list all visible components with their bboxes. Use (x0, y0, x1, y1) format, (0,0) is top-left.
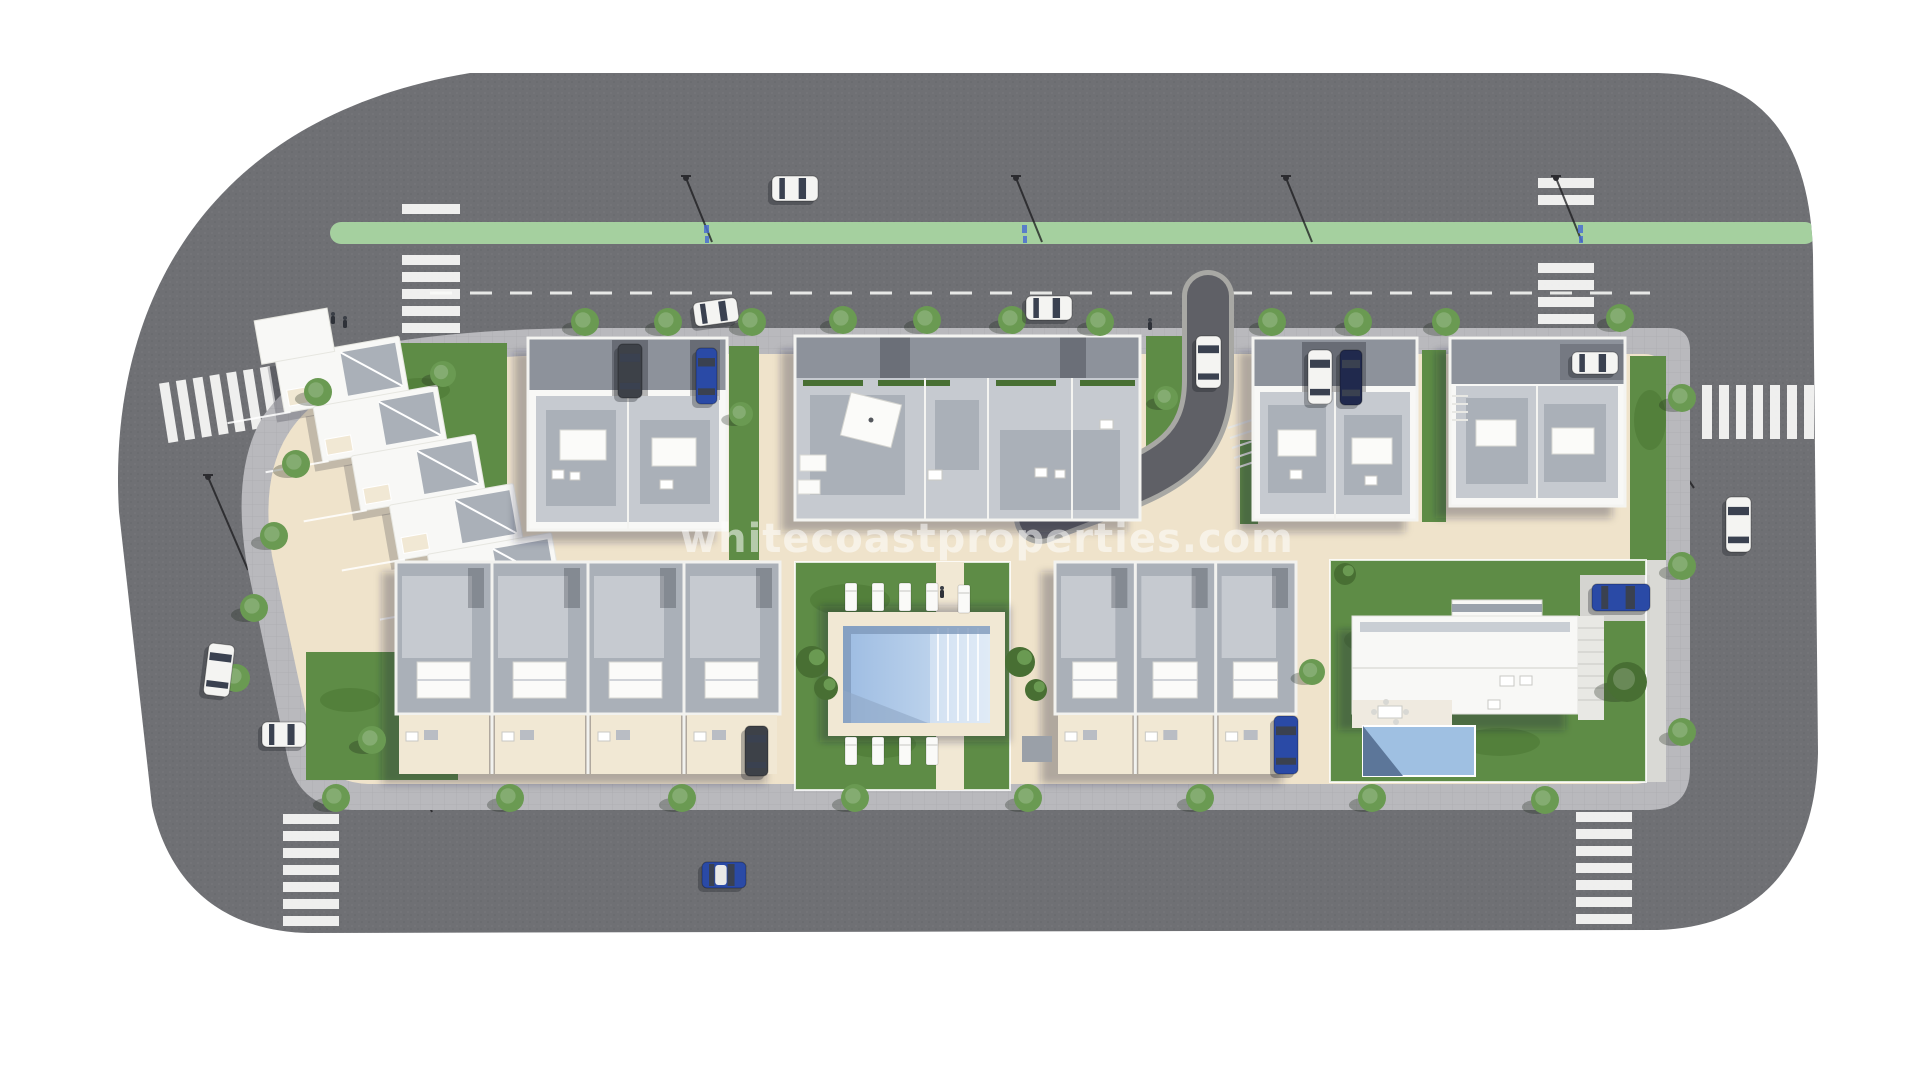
pedestrian-icon (1148, 318, 1152, 330)
lawn-patch (1634, 390, 1666, 450)
car-white-on-driveway (1192, 336, 1221, 392)
pedestrian-icon (331, 312, 335, 324)
lawn-patch (320, 688, 380, 712)
car-white-right-road (1722, 497, 1751, 556)
car-blue-parked-block-a (692, 348, 717, 408)
sun-lounger (926, 737, 938, 765)
car-dark-parked-south (741, 726, 768, 780)
bike-lane-green-strip (330, 222, 1816, 244)
bush-icon (1334, 563, 1356, 585)
sun-lounger (845, 737, 857, 765)
pedestrian-icon (940, 586, 944, 598)
aerial-site-plan: whitecoastproperties.com (0, 0, 1920, 1080)
townhouse-row-southeast (1041, 562, 1296, 784)
watermark: whitecoastproperties.com (680, 516, 1294, 562)
pedestrian-icon (343, 316, 347, 328)
sun-lounger (926, 583, 938, 611)
bush-icon (814, 676, 838, 700)
car-blue-villa-drive (1588, 584, 1650, 615)
building-central (781, 336, 1140, 532)
car-blue-parked-south (1270, 716, 1298, 778)
townhouse-row-southwest (382, 562, 780, 784)
car-white-carport-east (1568, 352, 1618, 378)
lawn-east-edge (1630, 356, 1666, 560)
car-suv-white-parked (1304, 350, 1332, 408)
villa-steps-path (1578, 616, 1604, 720)
bush-icon (1025, 679, 1047, 701)
garden-path-south (936, 736, 964, 790)
sun-lounger (899, 737, 911, 765)
sun-lounger (872, 583, 884, 611)
sun-lounger (899, 583, 911, 611)
sun-lounger (958, 585, 970, 613)
car-sedan-white-top-road (768, 176, 818, 205)
pool-equipment-box (1022, 736, 1052, 762)
car-gray-van-parked (614, 344, 642, 402)
site-plan-rendering: whitecoastproperties.com (0, 0, 1920, 1080)
bush-icon (1005, 647, 1035, 677)
car-white-carport-southwest (258, 722, 306, 751)
sun-lounger (845, 583, 857, 611)
sun-lounger (872, 737, 884, 765)
bush-icon (796, 646, 828, 678)
car-navy-parked (1336, 350, 1362, 409)
central-entry-band (795, 336, 1140, 378)
car-blue-south-road (698, 862, 746, 892)
car-parked-white-top-mid (1022, 296, 1072, 324)
